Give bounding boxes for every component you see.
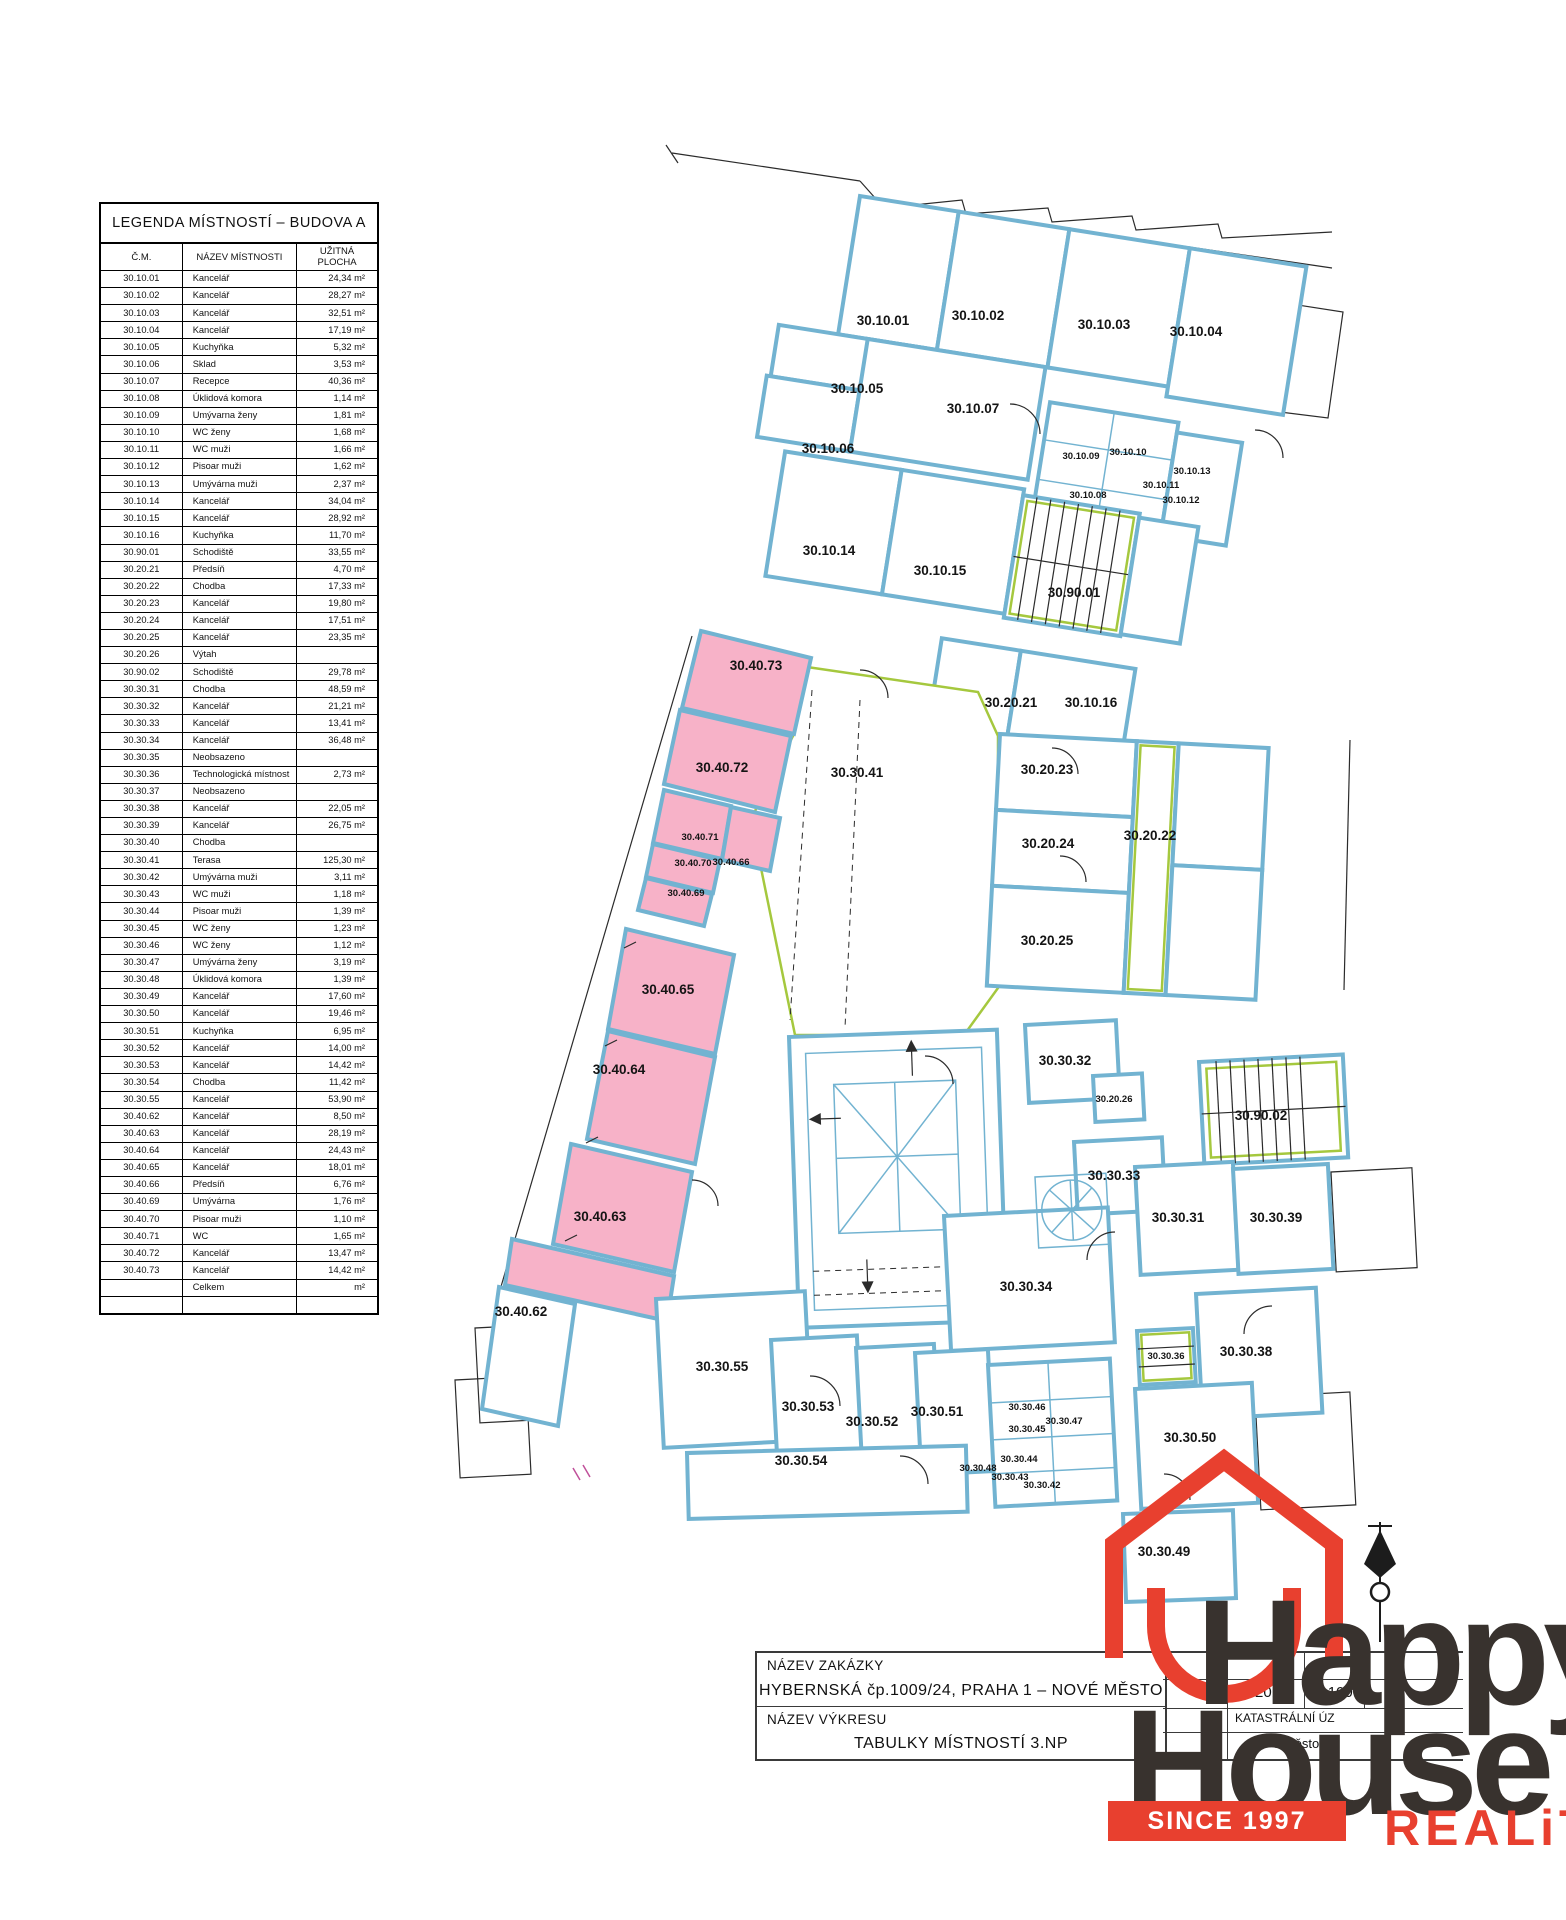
- room-name: Kancelář: [182, 1125, 296, 1142]
- room-area: 1,81 m²: [297, 407, 378, 424]
- legend-row: 30.40.72Kancelář13,47 m²: [100, 1245, 378, 1262]
- room-number: 30.20.26: [100, 647, 182, 664]
- room-area: 14,42 m²: [297, 1262, 378, 1279]
- legend-row: 30.30.46WC ženy1,12 m²: [100, 937, 378, 954]
- legend-row: 30.30.34Kancelář36,48 m²: [100, 732, 378, 749]
- legend-row: 30.30.51Kuchyňka6,95 m²: [100, 1023, 378, 1040]
- room-label: 30.10.14: [803, 543, 856, 558]
- room-label: 30.30.52: [846, 1414, 899, 1429]
- room-area: 17,60 m²: [297, 988, 378, 1005]
- room-number: 30.30.55: [100, 1091, 182, 1108]
- room-number: 30.30.33: [100, 715, 182, 732]
- room-area: [297, 835, 378, 852]
- room-number: 30.30.51: [100, 1023, 182, 1040]
- logo-reality-text: REALiTY: [1384, 1799, 1566, 1857]
- room-area: 36,48 m²: [297, 732, 378, 749]
- room-number: 30.30.37: [100, 783, 182, 800]
- room-name: Kancelář: [182, 800, 296, 817]
- room-number: 30.30.46: [100, 937, 182, 954]
- room-label: 30.20.22: [1124, 828, 1177, 843]
- room-area: m²: [297, 1279, 378, 1296]
- room-number: 30.30.32: [100, 698, 182, 715]
- room-label: 30.30.41: [831, 765, 884, 780]
- room-label: 30.30.51: [911, 1404, 964, 1419]
- room-label: 30.10.12: [1163, 495, 1200, 506]
- room-name: Technologická místnost: [182, 766, 296, 783]
- room-area: 3,19 m²: [297, 954, 378, 971]
- room-label: 30.30.50: [1164, 1430, 1217, 1445]
- room-area: 17,51 m²: [297, 612, 378, 629]
- room-label: 30.30.38: [1220, 1344, 1273, 1359]
- room-number: 30.30.40: [100, 835, 182, 852]
- room-number: 30.30.34: [100, 732, 182, 749]
- legend-table-body: 30.10.01Kancelář24,34 m²30.10.02Kancelář…: [100, 271, 378, 1314]
- legend-row: 30.30.32Kancelář21,21 m²: [100, 698, 378, 715]
- legend-row: 30.10.14Kancelář34,04 m²: [100, 493, 378, 510]
- legend-row: 30.20.22Chodba17,33 m²: [100, 578, 378, 595]
- room-area: 1,23 m²: [297, 920, 378, 937]
- room-name: Chodba: [182, 578, 296, 595]
- titleblock-value-vykres: TABULKY MÍSTNOSTÍ 3.NP: [757, 1735, 1165, 1753]
- room-number: 30.20.24: [100, 612, 182, 629]
- legend-row: 30.10.16Kuchyňka11,70 m²: [100, 527, 378, 544]
- room-number: 30.90.02: [100, 664, 182, 681]
- legend-row: 30.30.38Kancelář22,05 m²: [100, 800, 378, 817]
- room-name: Umývárna muži: [182, 476, 296, 493]
- room-name: Terasa: [182, 852, 296, 869]
- room-name: Kancelář: [182, 510, 296, 527]
- legend-row: 30.10.15Kancelář28,92 m²: [100, 510, 378, 527]
- room-label: 30.30.36: [1148, 1351, 1185, 1362]
- room-number: 30.10.11: [100, 441, 182, 458]
- room-name: Kancelář: [182, 1057, 296, 1074]
- room-number: 30.40.65: [100, 1159, 182, 1176]
- legend-row: 30.90.01Schodiště33,55 m²: [100, 544, 378, 561]
- room-name: Pisoar muži: [182, 459, 296, 476]
- legend-row: 30.10.13Umývárna muži2,37 m²: [100, 476, 378, 493]
- legend-table: LEGENDA MÍSTNOSTÍ – BUDOVA A Č.M. NÁZEV …: [99, 202, 379, 1315]
- room-name: Kancelář: [182, 732, 296, 749]
- room-name: Kancelář: [182, 1091, 296, 1108]
- room-area: 26,75 m²: [297, 818, 378, 835]
- room-area: [297, 783, 378, 800]
- room-label: 30.10.03: [1078, 317, 1131, 332]
- room-number: [100, 1296, 182, 1314]
- room-label: 30.40.70: [675, 858, 712, 869]
- room-number: 30.10.14: [100, 493, 182, 510]
- room-number: 30.30.54: [100, 1074, 182, 1091]
- legend-row: 30.10.06Sklad3,53 m²: [100, 356, 378, 373]
- room-name: Chodba: [182, 681, 296, 698]
- legend-row: 30.90.02Schodiště29,78 m²: [100, 664, 378, 681]
- room-name: Pisoar muži: [182, 903, 296, 920]
- legend-row: 30.10.05Kuchyňka5,32 m²: [100, 339, 378, 356]
- legend-row: 30.40.69Umývárna1,76 m²: [100, 1194, 378, 1211]
- room-area: 22,05 m²: [297, 800, 378, 817]
- legend-row: 30.10.04Kancelář17,19 m²: [100, 322, 378, 339]
- room-label: 30.10.02: [952, 308, 1005, 323]
- room-label: 30.40.64: [593, 1062, 646, 1077]
- legend-row: 30.30.45WC ženy1,23 m²: [100, 920, 378, 937]
- drawing-page: LEGENDA MÍSTNOSTÍ – BUDOVA A Č.M. NÁZEV …: [0, 0, 1566, 1920]
- room-number: 30.40.73: [100, 1262, 182, 1279]
- room-number: 30.10.04: [100, 322, 182, 339]
- room-number: 30.30.31: [100, 681, 182, 698]
- room-number: 30.30.50: [100, 1006, 182, 1023]
- room-name: WC ženy: [182, 920, 296, 937]
- room-name: Kancelář: [182, 288, 296, 305]
- room-name: Kancelář: [182, 1262, 296, 1279]
- room-label: 30.40.65: [642, 982, 695, 997]
- room-area: 6,95 m²: [297, 1023, 378, 1040]
- room-number: 30.10.03: [100, 305, 182, 322]
- room-name: Kancelář: [182, 1108, 296, 1125]
- room-name: WC muži: [182, 441, 296, 458]
- room-label: 30.20.23: [1021, 762, 1074, 777]
- room-area: 4,70 m²: [297, 561, 378, 578]
- legend-row: 30.30.54Chodba11,42 m²: [100, 1074, 378, 1091]
- room-label: 30.40.66: [713, 857, 750, 868]
- room-area: 19,80 m²: [297, 595, 378, 612]
- room-name: WC ženy: [182, 937, 296, 954]
- room-number: 30.40.69: [100, 1194, 182, 1211]
- legend-row: 30.10.11WC muži1,66 m²: [100, 441, 378, 458]
- room-name: Pisoar muži: [182, 1211, 296, 1228]
- room-number: 30.30.39: [100, 818, 182, 835]
- room-label: 30.30.32: [1039, 1053, 1092, 1068]
- legend-row: 30.10.10WC ženy1,68 m²: [100, 424, 378, 441]
- room-area: 13,41 m²: [297, 715, 378, 732]
- room-area: 14,00 m²: [297, 1040, 378, 1057]
- room-area: 1,76 m²: [297, 1194, 378, 1211]
- room-area: 17,19 m²: [297, 322, 378, 339]
- room-label: 30.40.69: [668, 888, 705, 899]
- room-name: Kuchyňka: [182, 1023, 296, 1040]
- room-area: 53,90 m²: [297, 1091, 378, 1108]
- room-area: 11,70 m²: [297, 527, 378, 544]
- legend-title: LEGENDA MÍSTNOSTÍ – BUDOVA A: [100, 203, 378, 243]
- room-area: 8,50 m²: [297, 1108, 378, 1125]
- room-name: Chodba: [182, 1074, 296, 1091]
- room-number: 30.10.02: [100, 288, 182, 305]
- room-label: 30.20.25: [1021, 933, 1074, 948]
- legend-row: 30.30.36Technologická místnost2,73 m²: [100, 766, 378, 783]
- room-area: 3,53 m²: [297, 356, 378, 373]
- legend-row: 30.30.43WC muži1,18 m²: [100, 886, 378, 903]
- room-number: 30.10.05: [100, 339, 182, 356]
- room-name: Kancelář: [182, 322, 296, 339]
- legend-row: 30.10.01Kancelář24,34 m²: [100, 271, 378, 288]
- room-name: Předsíň: [182, 1176, 296, 1193]
- room-name: Sklad: [182, 356, 296, 373]
- room-area: 1,68 m²: [297, 424, 378, 441]
- room-area: 1,14 m²: [297, 390, 378, 407]
- legend-row: 30.30.52Kancelář14,00 m²: [100, 1040, 378, 1057]
- room-label: 30.30.47: [1046, 1416, 1083, 1427]
- room-name: WC ženy: [182, 424, 296, 441]
- room-label: 30.20.21: [985, 695, 1038, 710]
- room-number: 30.10.10: [100, 424, 182, 441]
- room-label: 30.30.46: [1009, 1402, 1046, 1413]
- room-name: Schodiště: [182, 664, 296, 681]
- room-number: 30.30.41: [100, 852, 182, 869]
- room-number: 30.30.47: [100, 954, 182, 971]
- room-label: 30.10.04: [1170, 324, 1223, 339]
- room-name: Kancelář: [182, 305, 296, 322]
- room-label: 30.30.42: [1024, 1480, 1061, 1491]
- room-number: 30.90.01: [100, 544, 182, 561]
- room-name: Umývárna ženy: [182, 954, 296, 971]
- legend-col-cm: Č.M.: [100, 243, 182, 271]
- room-number: 30.30.49: [100, 988, 182, 1005]
- room-number: 30.40.71: [100, 1228, 182, 1245]
- legend-row: 30.40.63Kancelář28,19 m²: [100, 1125, 378, 1142]
- room-label: 30.90.01: [1048, 585, 1101, 600]
- room-number: 30.20.21: [100, 561, 182, 578]
- room-number: 30.10.15: [100, 510, 182, 527]
- room-area: [297, 1296, 378, 1314]
- room-area: 23,35 m²: [297, 629, 378, 646]
- room-label: 30.10.05: [831, 381, 884, 396]
- room-area: 1,66 m²: [297, 441, 378, 458]
- room-number: 30.40.64: [100, 1142, 182, 1159]
- room-area: 48,59 m²: [297, 681, 378, 698]
- room-number: 30.10.12: [100, 459, 182, 476]
- room-label: 30.40.73: [730, 658, 783, 673]
- room-number: 30.30.48: [100, 971, 182, 988]
- room-area: 14,42 m²: [297, 1057, 378, 1074]
- room-area: [297, 647, 378, 664]
- room-name: Umývárna: [182, 1194, 296, 1211]
- room-area: 1,39 m²: [297, 903, 378, 920]
- room-name: Úklidová komora: [182, 390, 296, 407]
- room-label: 30.20.26: [1096, 1094, 1133, 1105]
- room-area: [297, 749, 378, 766]
- room-number: 30.10.06: [100, 356, 182, 373]
- legend-row: 30.30.41Terasa125,30 m²: [100, 852, 378, 869]
- legend-row: 30.30.55Kancelář53,90 m²: [100, 1091, 378, 1108]
- room-label: 30.10.01: [857, 313, 910, 328]
- titleblock-label-zakazka: NÁZEV ZAKÁZKY: [767, 1658, 884, 1673]
- room-label: 30.40.71: [682, 832, 720, 843]
- room-number: 30.30.35: [100, 749, 182, 766]
- room-name: [182, 1296, 296, 1314]
- room-area: 5,32 m²: [297, 339, 378, 356]
- room-area: 40,36 m²: [297, 373, 378, 390]
- room-area: 1,65 m²: [297, 1228, 378, 1245]
- room-name: Recepce: [182, 373, 296, 390]
- room-name: Kancelář: [182, 493, 296, 510]
- room-number: 30.30.42: [100, 869, 182, 886]
- legend-row: 30.20.23Kancelář19,80 m²: [100, 595, 378, 612]
- legend-col-area: UŽITNÁ PLOCHA: [297, 243, 378, 271]
- room-name: Kuchyňka: [182, 339, 296, 356]
- room-area: 24,43 m²: [297, 1142, 378, 1159]
- legend-row: 30.20.21Předsíň4,70 m²: [100, 561, 378, 578]
- room-name: Předsíň: [182, 561, 296, 578]
- legend-row: 30.30.35Neobsazeno: [100, 749, 378, 766]
- room-label: 30.40.72: [696, 760, 749, 775]
- legend-row: 30.20.24Kancelář17,51 m²: [100, 612, 378, 629]
- legend-col-name: NÁZEV MÍSTNOSTI: [182, 243, 296, 271]
- room-name: Kancelář: [182, 1159, 296, 1176]
- room-name: Celkem: [182, 1279, 296, 1296]
- room-label: 30.30.54: [775, 1453, 828, 1468]
- room-label: 30.10.09: [1063, 451, 1100, 462]
- room-number: 30.10.13: [100, 476, 182, 493]
- room-area: 2,73 m²: [297, 766, 378, 783]
- room-area: 3,11 m²: [297, 869, 378, 886]
- room-name: Kancelář: [182, 818, 296, 835]
- room-name: Kancelář: [182, 612, 296, 629]
- room-name: Kancelář: [182, 271, 296, 288]
- room-label: 30.30.45: [1009, 1424, 1047, 1435]
- legend-row: 30.30.33Kancelář13,41 m²: [100, 715, 378, 732]
- room-area: 24,34 m²: [297, 271, 378, 288]
- room-name: Úklidová komora: [182, 971, 296, 988]
- legend-row: Celkemm²: [100, 1279, 378, 1296]
- room-area: 2,37 m²: [297, 476, 378, 493]
- legend-row: 30.10.02Kancelář28,27 m²: [100, 288, 378, 305]
- legend-row: 30.30.39Kancelář26,75 m²: [100, 818, 378, 835]
- legend-row: 30.40.62Kancelář8,50 m²: [100, 1108, 378, 1125]
- room-number: 30.40.66: [100, 1176, 182, 1193]
- room-area: 1,62 m²: [297, 459, 378, 476]
- legend-row: 30.30.53Kancelář14,42 m²: [100, 1057, 378, 1074]
- room-name: Chodba: [182, 835, 296, 852]
- legend-header-row: Č.M. NÁZEV MÍSTNOSTI UŽITNÁ PLOCHA: [100, 243, 378, 271]
- room-label: 30.10.06: [802, 441, 855, 456]
- room-number: 30.40.72: [100, 1245, 182, 1262]
- room-label: 30.10.13: [1174, 466, 1211, 477]
- legend-row: 30.40.73Kancelář14,42 m²: [100, 1262, 378, 1279]
- legend-row: 30.30.40Chodba: [100, 835, 378, 852]
- room-label: 30.30.53: [782, 1399, 835, 1414]
- room-number: 30.40.70: [100, 1211, 182, 1228]
- room-number: 30.40.63: [100, 1125, 182, 1142]
- titleblock-label-vykres: NÁZEV VÝKRESU: [767, 1712, 887, 1727]
- room-area: 19,46 m²: [297, 1006, 378, 1023]
- room-label: 30.10.07: [947, 401, 1000, 416]
- logo-since-badge: SINCE 1997: [1108, 1801, 1346, 1841]
- room-name: WC: [182, 1228, 296, 1245]
- legend-row: 30.40.65Kancelář18,01 m²: [100, 1159, 378, 1176]
- room-label: 30.10.11: [1143, 480, 1180, 491]
- room-area: 13,47 m²: [297, 1245, 378, 1262]
- legend-row: 30.10.09Umývarna ženy1,81 m²: [100, 407, 378, 424]
- legend-row: 30.10.08Úklidová komora1,14 m²: [100, 390, 378, 407]
- room-number: 30.10.01: [100, 271, 182, 288]
- legend-row: 30.10.07Recepce40,36 m²: [100, 373, 378, 390]
- room-number: 30.10.09: [100, 407, 182, 424]
- room-area: 11,42 m²: [297, 1074, 378, 1091]
- room-area: 28,19 m²: [297, 1125, 378, 1142]
- room-area: 1,10 m²: [297, 1211, 378, 1228]
- legend-row: 30.40.64Kancelář24,43 m²: [100, 1142, 378, 1159]
- room-number: 30.30.52: [100, 1040, 182, 1057]
- room-number: 30.30.53: [100, 1057, 182, 1074]
- room-label: 30.10.16: [1065, 695, 1118, 710]
- legend-row: 30.40.66Předsíň6,76 m²: [100, 1176, 378, 1193]
- room-number: [100, 1279, 182, 1296]
- legend-row: 30.30.42Umývárna muži3,11 m²: [100, 869, 378, 886]
- room-area: 17,33 m²: [297, 578, 378, 595]
- room-number: 30.30.45: [100, 920, 182, 937]
- legend-row: 30.40.70Pisoar muži1,10 m²: [100, 1211, 378, 1228]
- room-name: Umývárna muži: [182, 869, 296, 886]
- legend-row: 30.30.48Úklidová komora1,39 m²: [100, 971, 378, 988]
- legend-row: 30.10.03Kancelář32,51 m²: [100, 305, 378, 322]
- room-name: WC muži: [182, 886, 296, 903]
- room-area: 1,39 m²: [297, 971, 378, 988]
- legend-row: 30.30.31Chodba48,59 m²: [100, 681, 378, 698]
- legend-row: 30.30.49Kancelář17,60 m²: [100, 988, 378, 1005]
- room-label: 30.20.24: [1022, 836, 1075, 851]
- room-label: 30.10.15: [914, 563, 967, 578]
- room-number: 30.10.16: [100, 527, 182, 544]
- room-name: Umývarna ženy: [182, 407, 296, 424]
- room-area: 34,04 m²: [297, 493, 378, 510]
- room-area: 32,51 m²: [297, 305, 378, 322]
- room-number: 30.30.43: [100, 886, 182, 903]
- room-number: 30.40.62: [100, 1108, 182, 1125]
- room-area: 29,78 m²: [297, 664, 378, 681]
- room-name: Neobsazeno: [182, 749, 296, 766]
- room-area: 28,92 m²: [297, 510, 378, 527]
- room-area: 6,76 m²: [297, 1176, 378, 1193]
- room-name: Neobsazeno: [182, 783, 296, 800]
- room-area: 125,30 m²: [297, 852, 378, 869]
- room-name: Kancelář: [182, 1245, 296, 1262]
- room-name: Schodiště: [182, 544, 296, 561]
- room-label: 30.40.62: [495, 1304, 548, 1319]
- room-name: Výtah: [182, 647, 296, 664]
- legend-row: 30.20.25Kancelář23,35 m²: [100, 629, 378, 646]
- room-name: Kancelář: [182, 1142, 296, 1159]
- legend-row: 30.40.71WC1,65 m²: [100, 1228, 378, 1245]
- room-label: 30.90.02: [1235, 1108, 1288, 1123]
- room-name: Kancelář: [182, 595, 296, 612]
- room-label: 30.10.08: [1070, 490, 1107, 501]
- room-number: 30.30.44: [100, 903, 182, 920]
- room-label: 30.40.63: [574, 1209, 627, 1224]
- room-area: 28,27 m²: [297, 288, 378, 305]
- legend-row: 30.20.26Výtah: [100, 647, 378, 664]
- legend-row: 30.30.37Neobsazeno: [100, 783, 378, 800]
- legend-row: 30.30.44Pisoar muži1,39 m²: [100, 903, 378, 920]
- room-label: 30.30.34: [1000, 1279, 1053, 1294]
- legend-row: 30.30.50Kancelář19,46 m²: [100, 1006, 378, 1023]
- room-area: 18,01 m²: [297, 1159, 378, 1176]
- room-number: 30.20.22: [100, 578, 182, 595]
- room-name: Kancelář: [182, 988, 296, 1005]
- room-number: 30.20.25: [100, 629, 182, 646]
- room-label: 30.30.44: [1001, 1454, 1039, 1465]
- legend-row: 30.30.47Umývárna ženy3,19 m²: [100, 954, 378, 971]
- room-label: 30.30.31: [1152, 1210, 1205, 1225]
- legend-row: [100, 1296, 378, 1314]
- room-label: 30.30.33: [1088, 1168, 1141, 1183]
- room-label: 30.10.10: [1110, 447, 1147, 458]
- room-label: 30.30.39: [1250, 1210, 1303, 1225]
- room-number: 30.10.08: [100, 390, 182, 407]
- legend-row: 30.10.12Pisoar muži1,62 m²: [100, 459, 378, 476]
- room-name: Kancelář: [182, 698, 296, 715]
- room-name: Kuchyňka: [182, 527, 296, 544]
- room-name: Kancelář: [182, 715, 296, 732]
- room-number: 30.10.07: [100, 373, 182, 390]
- room-number: 30.30.36: [100, 766, 182, 783]
